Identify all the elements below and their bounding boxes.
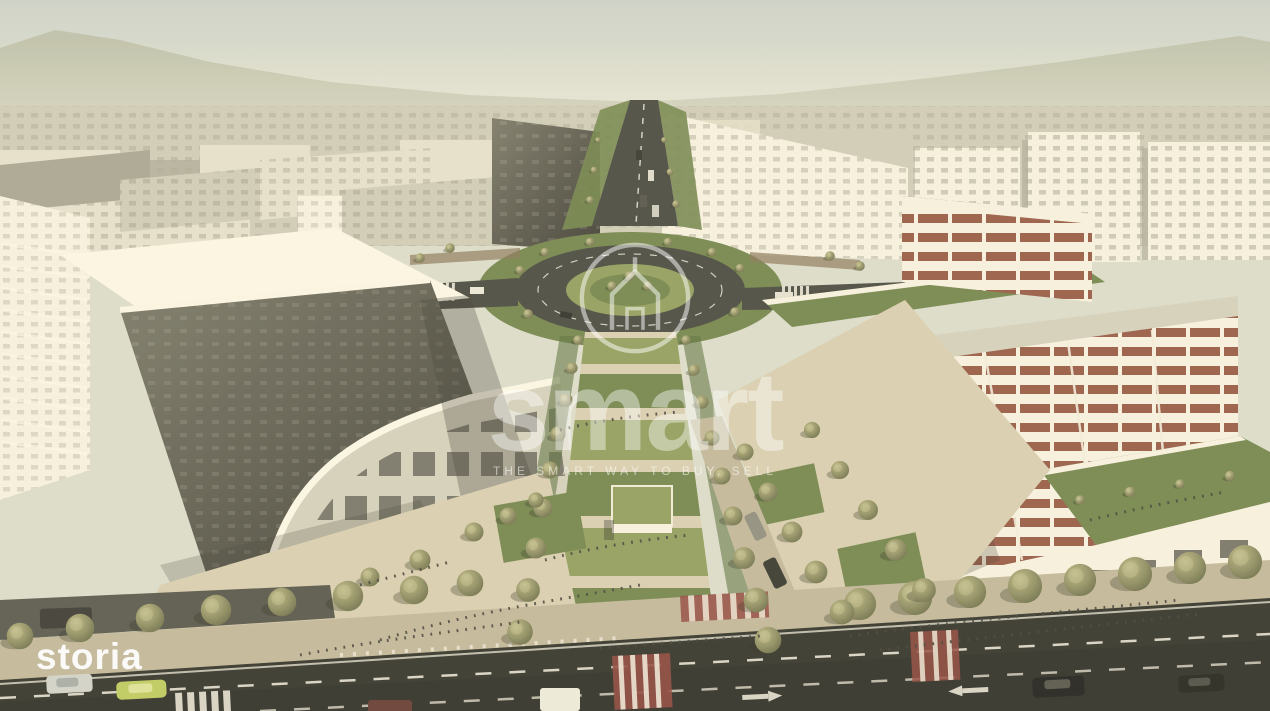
sepia-tint-overlay [0,0,1270,711]
scene-illustration [0,0,1270,711]
aerial-city-render: smart THE SMART WAY TO BUY, SELL storia [0,0,1270,711]
storia-wordmark: storia [36,636,143,677]
storia-watermark: storia [36,636,143,678]
